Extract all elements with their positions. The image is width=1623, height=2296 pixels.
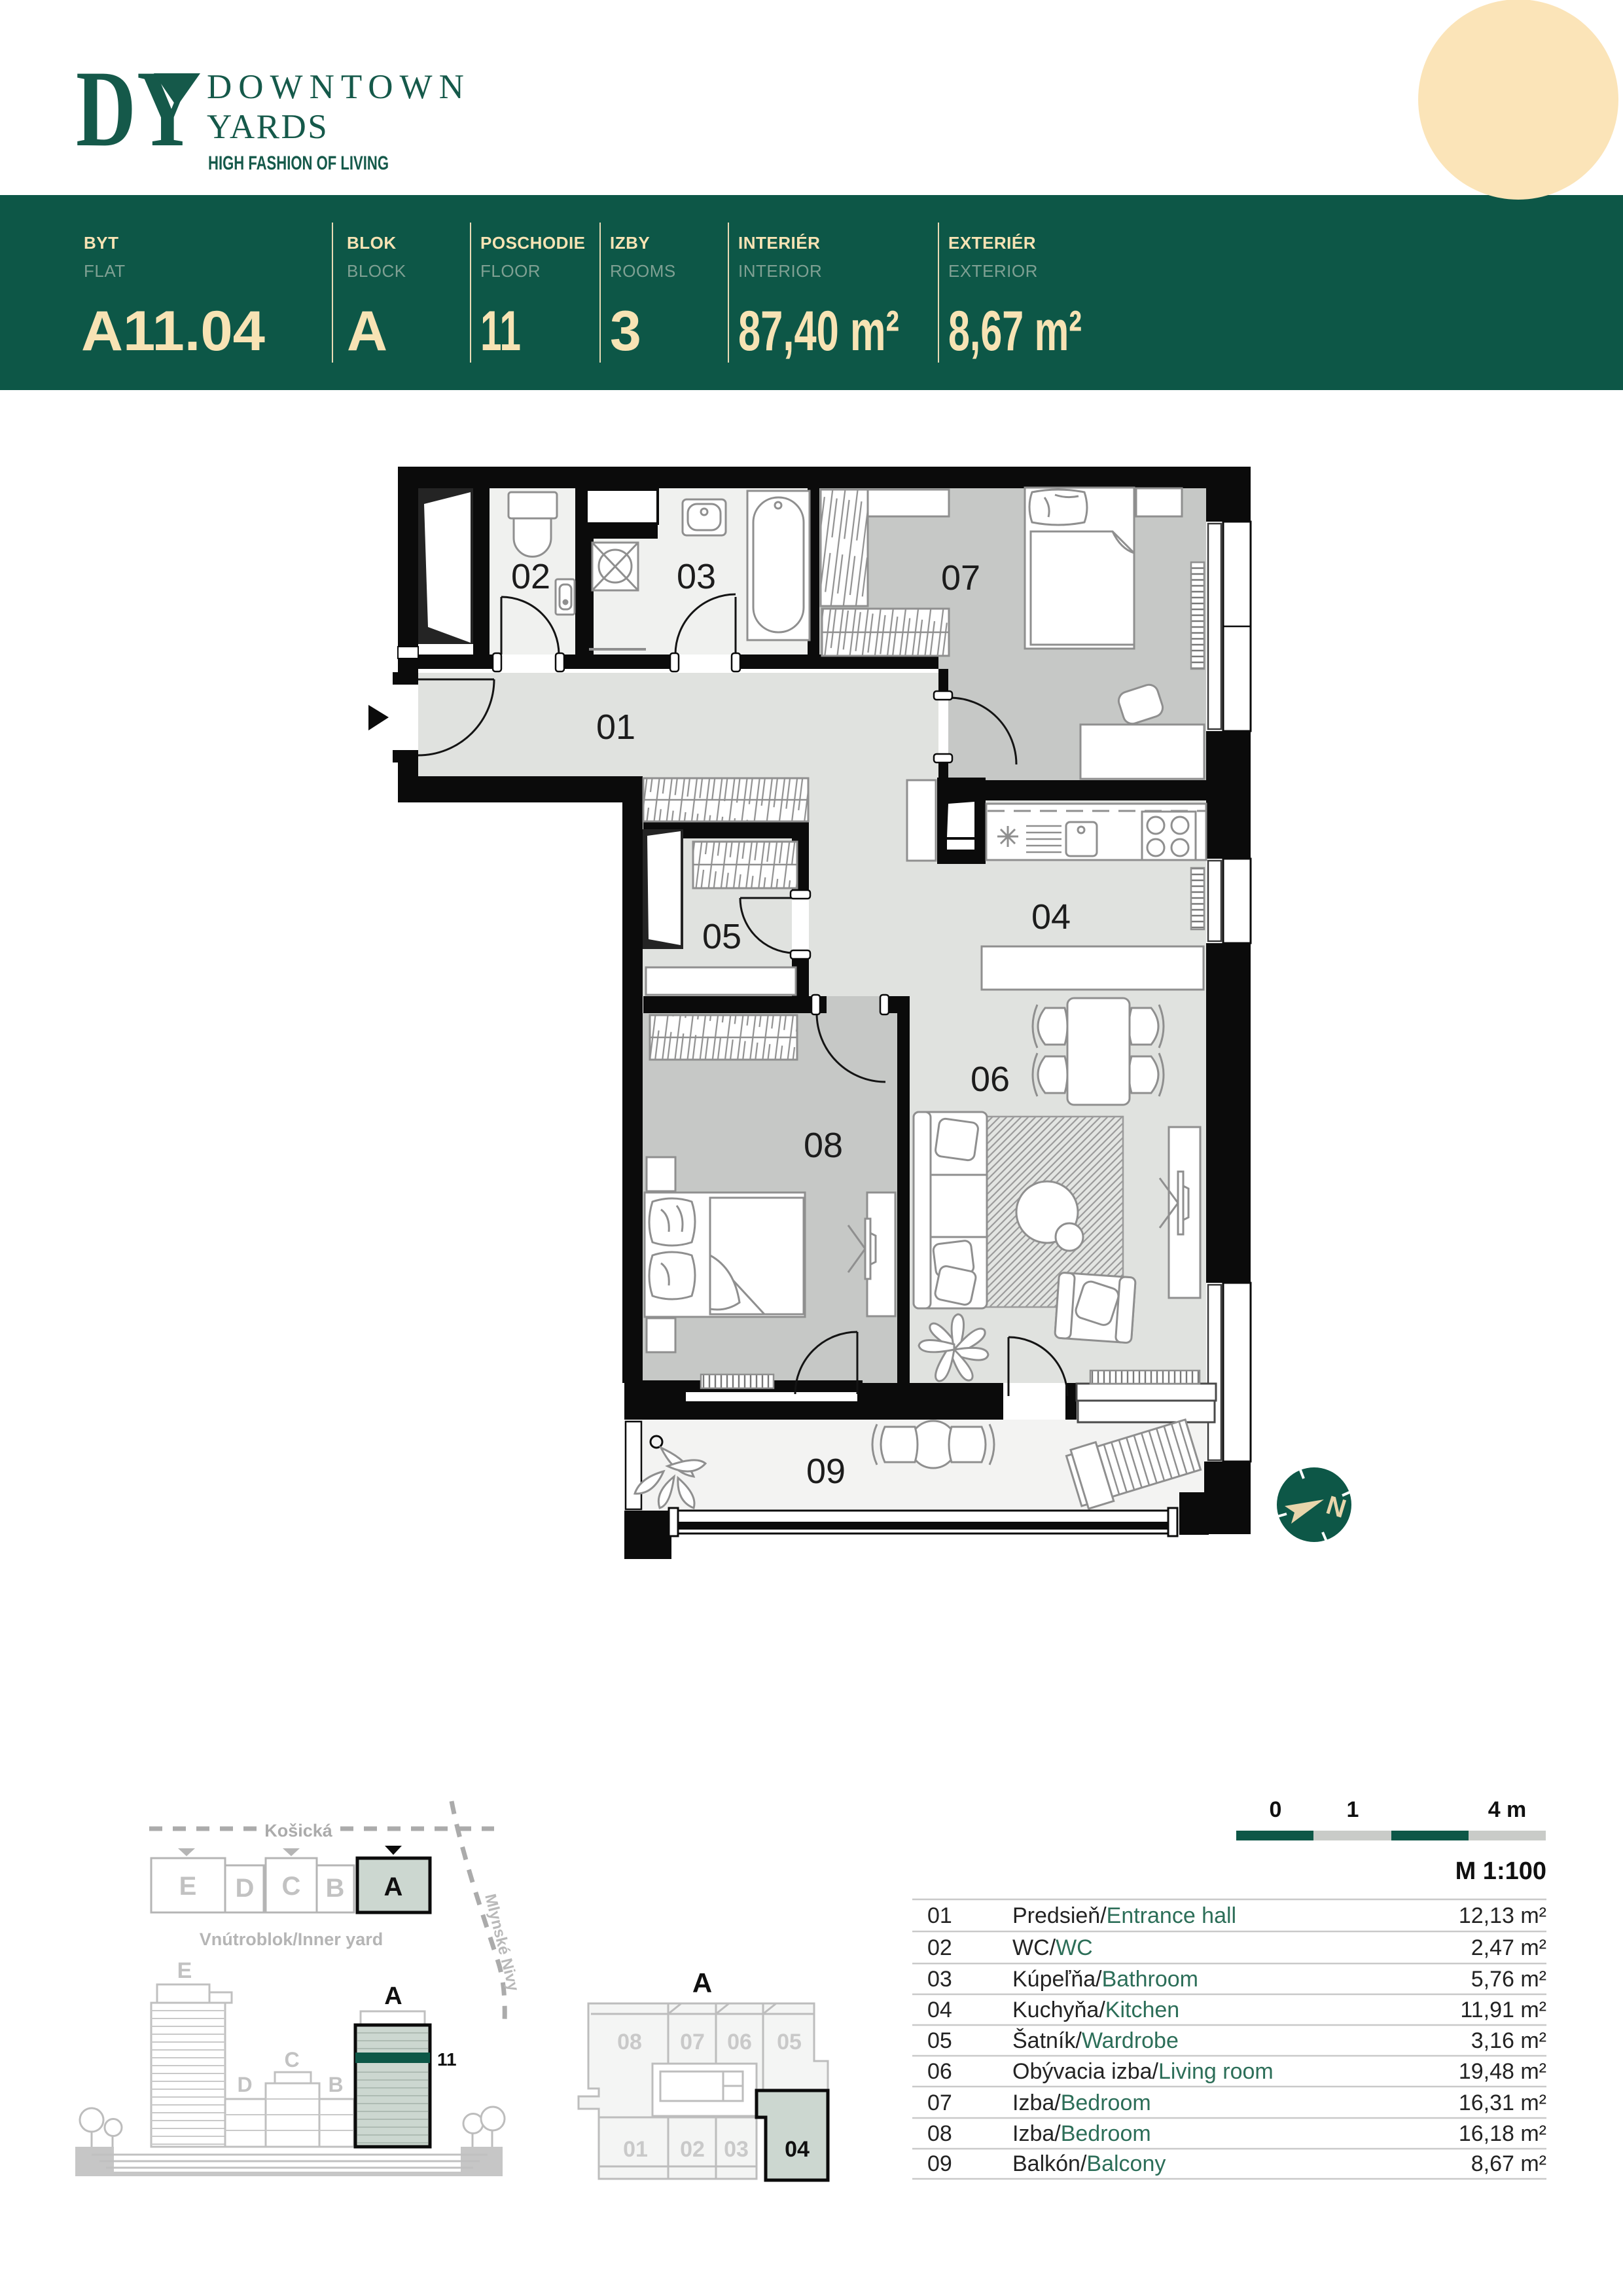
svg-text:Kuchyňa/Kitchen: Kuchyňa/Kitchen (1012, 1998, 1179, 2022)
svg-text:EXTERIOR: EXTERIOR (948, 261, 1038, 281)
svg-text:04: 04 (1031, 897, 1071, 937)
svg-text:02: 02 (511, 557, 550, 596)
svg-text:YARDS: YARDS (207, 108, 329, 146)
svg-text:11: 11 (480, 300, 521, 363)
svg-text:07: 07 (680, 2030, 705, 2054)
svg-text:05: 05 (702, 917, 741, 956)
svg-text:A: A (384, 1982, 402, 2010)
svg-text:BYT: BYT (84, 233, 119, 253)
svg-text:2,47 m²: 2,47 m² (1471, 1935, 1546, 1960)
svg-text:Kúpeľňa/Bathroom: Kúpeľňa/Bathroom (1012, 1967, 1198, 1992)
svg-text:03: 03 (724, 2137, 749, 2162)
svg-text:5,76 m²: 5,76 m² (1471, 1967, 1546, 1992)
svg-text:11: 11 (437, 2049, 457, 2070)
svg-text:4 m: 4 m (1488, 1797, 1527, 1822)
svg-text:16,18 m²: 16,18 m² (1459, 2121, 1546, 2146)
svg-text:INTERIOR: INTERIOR (738, 261, 822, 281)
svg-text:05: 05 (927, 2028, 952, 2053)
svg-text:BLOCK: BLOCK (347, 261, 406, 281)
svg-text:09: 09 (927, 2151, 952, 2176)
svg-text:Predsieň/Entrance hall: Predsieň/Entrance hall (1012, 1903, 1236, 1928)
svg-text:1: 1 (1347, 1797, 1359, 1822)
svg-text:06: 06 (727, 2030, 752, 2054)
svg-text:02: 02 (927, 1935, 952, 1960)
svg-text:HIGH FASHION OF LIVING: HIGH FASHION OF LIVING (208, 152, 389, 174)
svg-text:08: 08 (804, 1126, 843, 1165)
svg-text:E: E (179, 1872, 197, 1901)
svg-text:D: D (237, 2073, 252, 2096)
svg-text:BLOK: BLOK (347, 233, 397, 253)
svg-text:06: 06 (927, 2059, 952, 2084)
svg-text:08: 08 (927, 2121, 952, 2146)
svg-text:E: E (177, 1958, 192, 1983)
svg-text:01: 01 (623, 2137, 648, 2162)
svg-text:8,67 m²: 8,67 m² (948, 300, 1082, 363)
svg-text:A11.04: A11.04 (81, 300, 265, 363)
svg-text:12,13 m²: 12,13 m² (1459, 1903, 1546, 1928)
svg-text:Balkón/Balcony: Balkón/Balcony (1012, 2151, 1166, 2176)
svg-text:02: 02 (680, 2137, 705, 2162)
svg-text:B: B (328, 2073, 343, 2096)
svg-text:A: A (347, 300, 387, 363)
svg-text:04: 04 (927, 1998, 952, 2022)
svg-text:07: 07 (941, 558, 980, 598)
svg-text:0: 0 (1270, 1797, 1282, 1822)
svg-text:3,16 m²: 3,16 m² (1471, 2028, 1546, 2053)
svg-text:04: 04 (785, 2137, 810, 2162)
svg-text:Košická: Košická (264, 1821, 333, 1840)
svg-text:M 1:100: M 1:100 (1455, 1857, 1546, 1885)
svg-text:05: 05 (777, 2030, 802, 2054)
svg-text:Izba/Bedroom: Izba/Bedroom (1012, 2090, 1151, 2115)
svg-text:03: 03 (677, 557, 716, 596)
svg-text:07: 07 (927, 2090, 952, 2115)
svg-text:Šatník/Wardrobe: Šatník/Wardrobe (1012, 2028, 1179, 2053)
svg-text:A: A (384, 1873, 403, 1901)
svg-text:B: B (326, 1874, 345, 1903)
svg-text:3: 3 (610, 300, 641, 363)
svg-text:8,67 m²: 8,67 m² (1471, 2151, 1546, 2176)
svg-text:INTERIÉR: INTERIÉR (738, 233, 820, 253)
svg-text:DY: DY (76, 49, 198, 170)
svg-text:Izba/Bedroom: Izba/Bedroom (1012, 2121, 1151, 2146)
svg-text:11,91 m²: 11,91 m² (1460, 1998, 1546, 2022)
svg-text:POSCHODIE: POSCHODIE (480, 233, 586, 253)
svg-text:ROOMS: ROOMS (610, 261, 676, 281)
svg-text:06: 06 (971, 1060, 1010, 1099)
svg-text:C: C (282, 1872, 301, 1901)
svg-text:WC/WC: WC/WC (1012, 1935, 1093, 1960)
svg-text:FLOOR: FLOOR (480, 261, 541, 281)
svg-text:IZBY: IZBY (610, 233, 650, 253)
svg-text:C: C (284, 2048, 299, 2072)
svg-text:DOWNTOWN: DOWNTOWN (207, 68, 471, 106)
svg-text:16,31 m²: 16,31 m² (1459, 2090, 1546, 2115)
svg-text:Vnútroblok/Inner yard: Vnútroblok/Inner yard (200, 1929, 383, 1949)
svg-text:01: 01 (596, 708, 635, 747)
svg-text:01: 01 (927, 1903, 952, 1928)
svg-text:A: A (692, 1967, 712, 1998)
svg-text:Obývacia izba/Living room: Obývacia izba/Living room (1012, 2059, 1274, 2084)
svg-text:FLAT: FLAT (84, 261, 126, 281)
svg-text:87,40 m²: 87,40 m² (738, 300, 899, 363)
svg-text:03: 03 (927, 1967, 952, 1992)
svg-text:EXTERIÉR: EXTERIÉR (948, 233, 1036, 253)
svg-text:09: 09 (806, 1452, 846, 1491)
svg-text:D: D (236, 1874, 255, 1903)
svg-text:19,48 m²: 19,48 m² (1459, 2059, 1546, 2084)
svg-text:08: 08 (617, 2030, 642, 2054)
